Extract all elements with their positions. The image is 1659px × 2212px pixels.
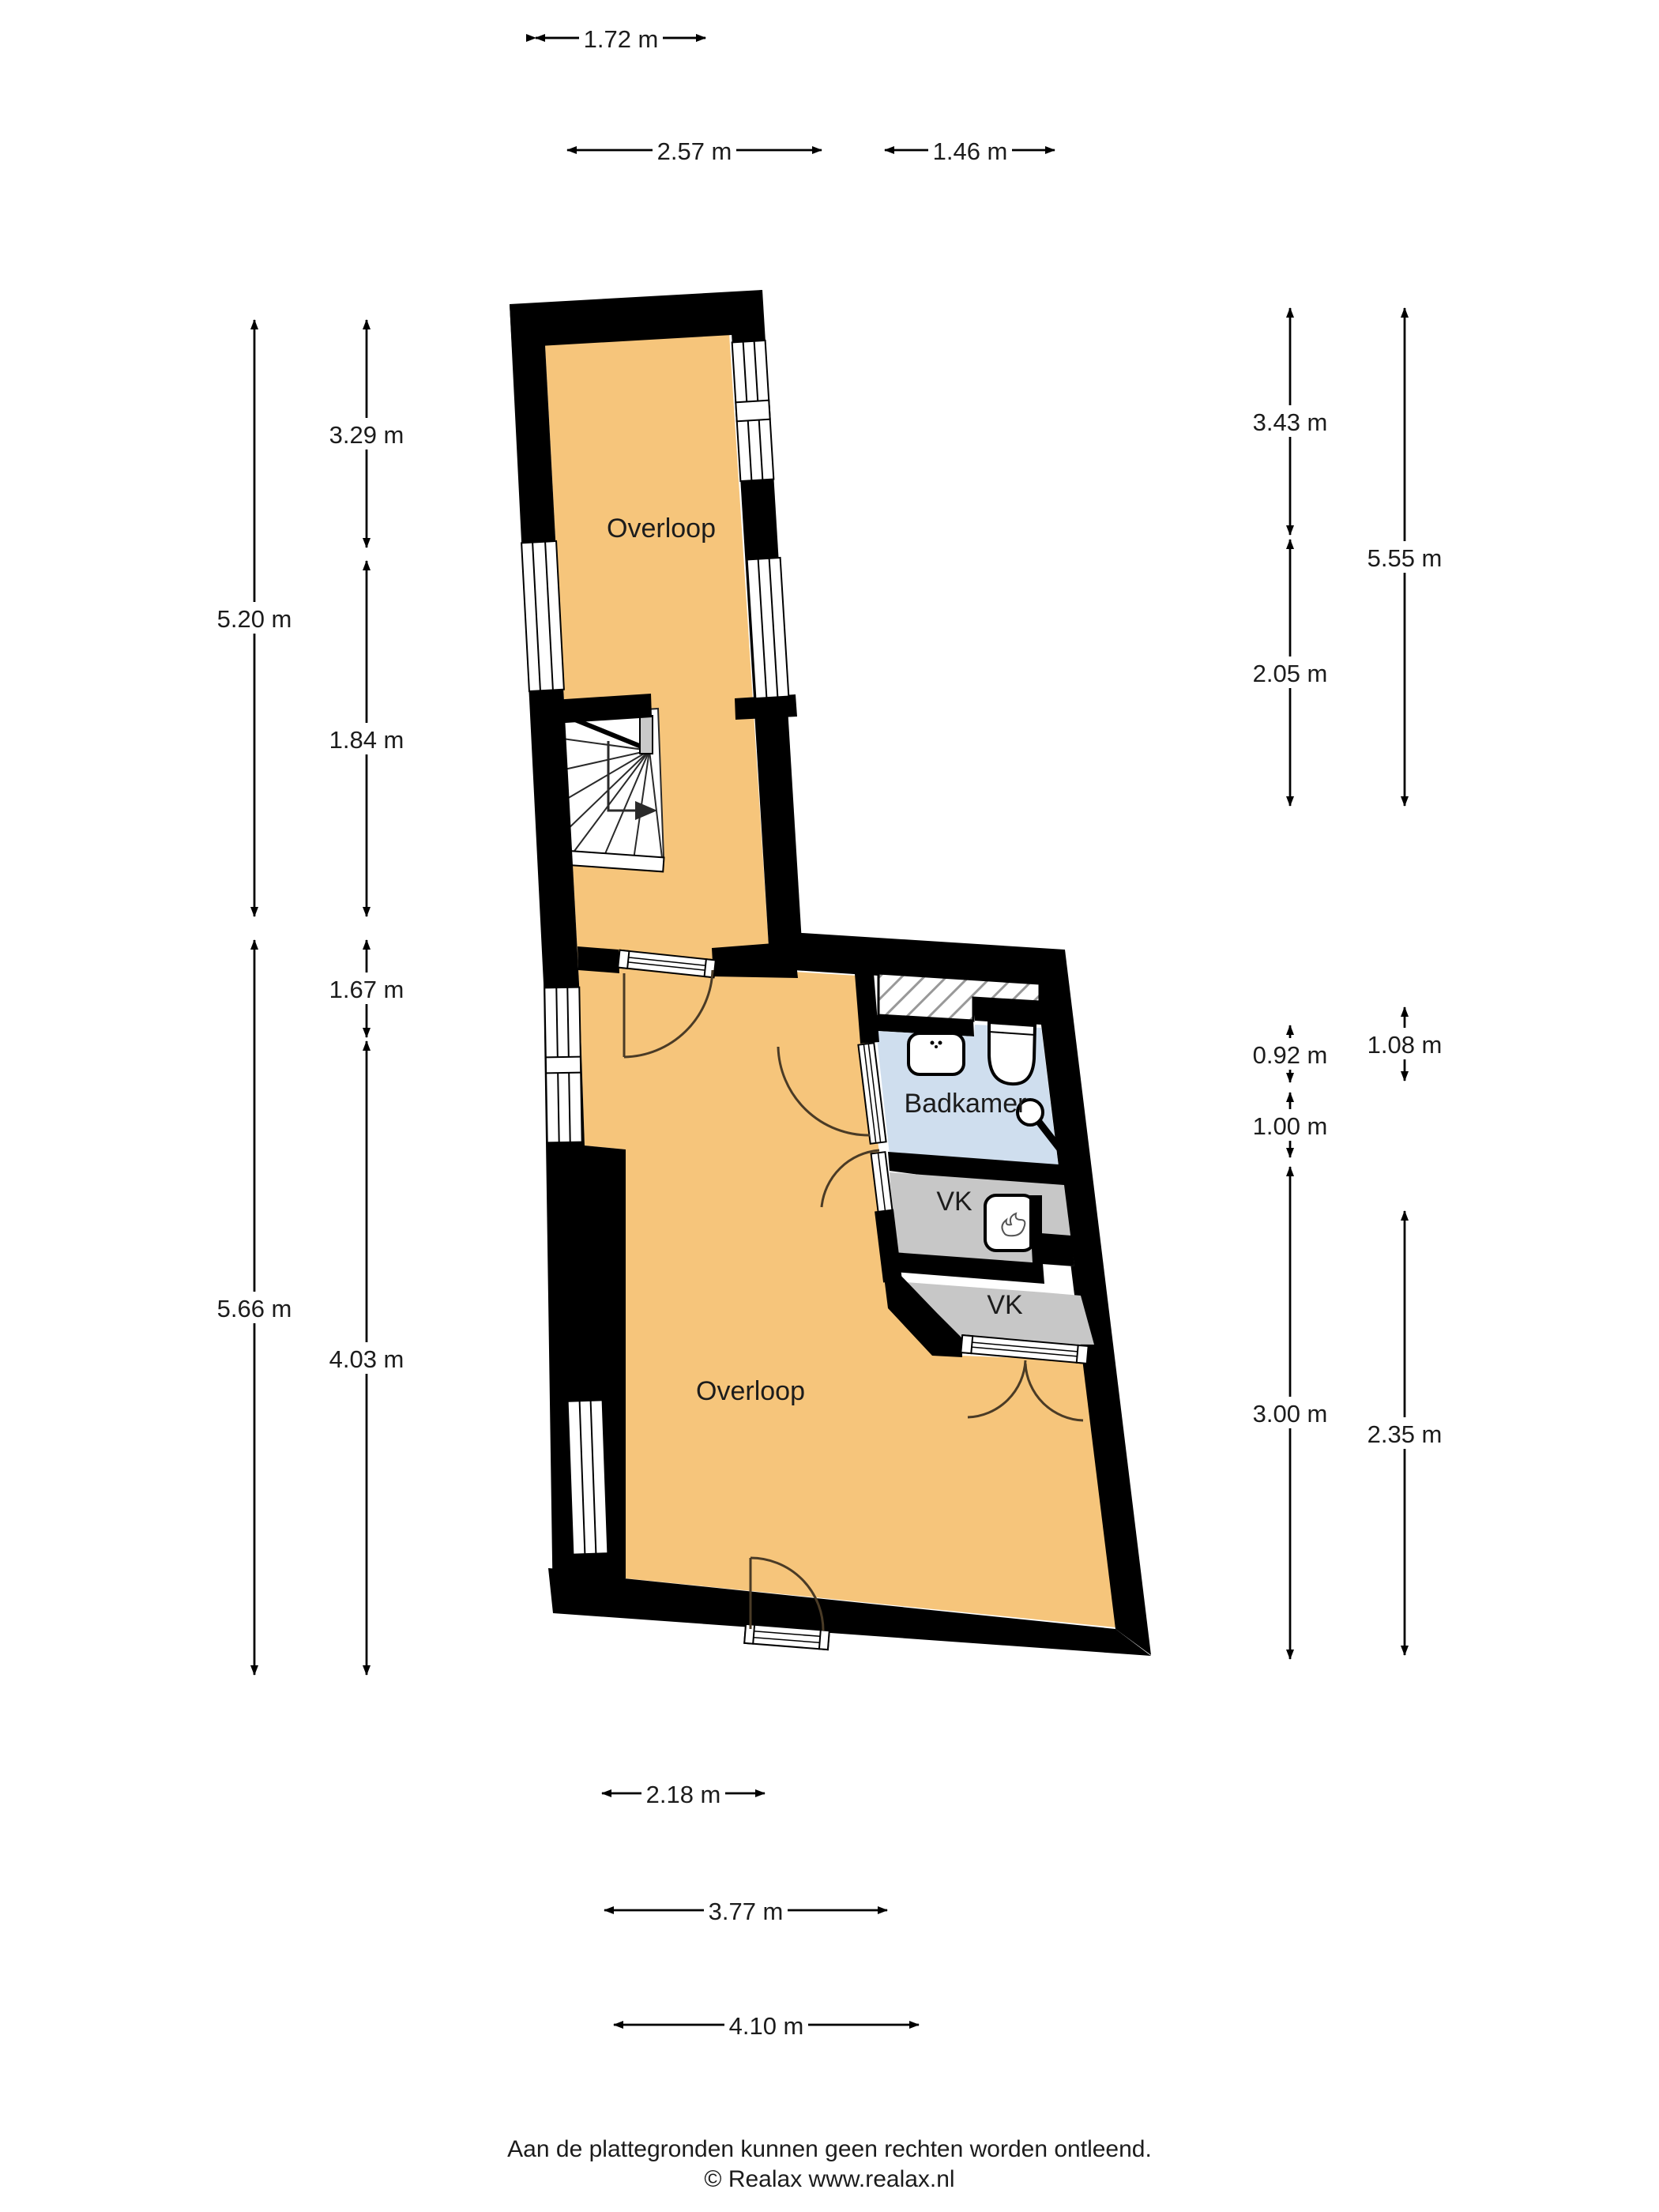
dim-bottom-1: 2.18 m xyxy=(641,1777,725,1809)
dim-label: 1.00 m xyxy=(1253,1112,1328,1140)
dim-left-329: 3.29 m xyxy=(325,418,408,450)
dim-bottom-3: 4.10 m xyxy=(724,2009,808,2041)
dim-label: 0.92 m xyxy=(1253,1041,1328,1069)
dim-left-167: 1.67 m xyxy=(325,972,408,1004)
boiler xyxy=(985,1195,1042,1251)
dim-label: 3.77 m xyxy=(709,1898,784,1925)
dim-left-520: 5.20 m xyxy=(213,602,296,634)
junction-wall-left xyxy=(577,946,619,973)
floorplan-canvas: Overloop Overloop Badkamer VK VK xyxy=(0,0,1659,2212)
dim-label: 2.18 m xyxy=(646,1781,721,1808)
dim-label: 1.84 m xyxy=(329,726,404,754)
dim-label: 3.29 m xyxy=(329,421,404,449)
dim-left-566: 5.66 m xyxy=(213,1292,296,1323)
window-lower-left-upper xyxy=(544,987,581,1143)
dim-right-205: 2.05 m xyxy=(1248,656,1332,688)
dim-label: 1.46 m xyxy=(933,137,1008,165)
room-label-overloop-bottom: Overloop xyxy=(696,1376,805,1406)
stair-newel xyxy=(640,716,653,754)
dim-label: 1.67 m xyxy=(329,976,404,1003)
footer-disclaimer: Aan de plattegronden kunnen geen rechten… xyxy=(507,2136,1152,2162)
window-lower-left-lower xyxy=(568,1400,608,1554)
dim-right-108: 1.08 m xyxy=(1363,1028,1446,1059)
dim-right-555: 5.55 m xyxy=(1363,541,1446,573)
hall-bathroom-wall xyxy=(864,973,870,1043)
dim-right-092: 0.92 m xyxy=(1248,1038,1332,1070)
dim-label: 5.66 m xyxy=(217,1295,292,1322)
hall-vk-wall xyxy=(884,1210,893,1281)
dim-label: 2.05 m xyxy=(1253,660,1328,687)
floorplan-page: Overloop Overloop Badkamer VK VK xyxy=(0,0,1659,2212)
dim-label: 4.03 m xyxy=(329,1345,404,1373)
dim-label: 3.00 m xyxy=(1253,1400,1328,1428)
dim-label: 2.57 m xyxy=(657,137,732,165)
room-label-vk-upper: VK xyxy=(936,1187,972,1217)
junction-wall-right xyxy=(712,942,798,978)
room-label-overloop-top: Overloop xyxy=(607,513,716,544)
dim-right-100: 1.00 m xyxy=(1248,1109,1332,1141)
window-wing-right-upper xyxy=(732,340,774,481)
dim-right-235: 2.35 m xyxy=(1363,1417,1446,1449)
dim-bottom-2: 3.77 m xyxy=(704,1894,788,1926)
dim-label: 5.20 m xyxy=(217,605,292,633)
dim-label: 4.10 m xyxy=(729,2012,804,2040)
footer-copyright: © Realax www.realax.nl xyxy=(704,2166,954,2192)
dim-left-403: 4.03 m xyxy=(325,1342,408,1374)
dim-top-2: 2.57 m xyxy=(653,134,736,166)
dim-label: 2.35 m xyxy=(1367,1420,1443,1448)
dim-top-3: 1.46 m xyxy=(928,134,1012,166)
dim-top-1: 1.72 m xyxy=(579,22,663,54)
dim-right-300: 3.00 m xyxy=(1248,1397,1332,1428)
room-label-badkamer: Badkamer xyxy=(905,1089,1027,1119)
dim-label: 3.43 m xyxy=(1253,408,1328,436)
footer: Aan de plattegronden kunnen geen rechten… xyxy=(507,2136,1152,2192)
dim-label: 1.72 m xyxy=(584,25,659,53)
dim-right-343: 3.43 m xyxy=(1248,405,1332,437)
dim-label: 5.55 m xyxy=(1367,544,1443,572)
room-label-vk-lower: VK xyxy=(987,1290,1023,1320)
toilet xyxy=(989,1022,1035,1084)
wall-above-toilet xyxy=(973,998,1041,1025)
sink xyxy=(908,1033,964,1074)
window-wing-left xyxy=(521,541,564,691)
staircase xyxy=(559,709,664,871)
dim-left-184: 1.84 m xyxy=(325,723,408,754)
dim-label: 1.08 m xyxy=(1367,1031,1443,1059)
